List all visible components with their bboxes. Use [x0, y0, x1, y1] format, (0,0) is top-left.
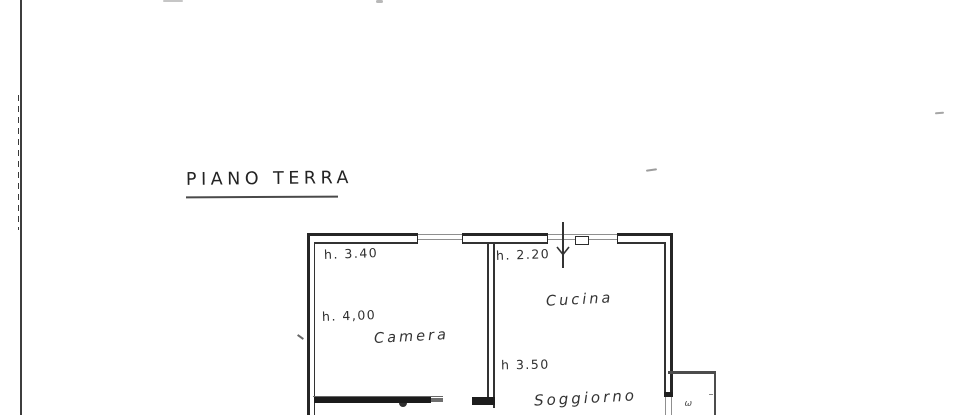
door-hinge-bump — [399, 403, 407, 408]
wall-bottom-solid — [314, 397, 431, 403]
wall-partition-left-line — [487, 243, 489, 405]
balcony-door-opening-line — [671, 397, 672, 415]
wall-bottom-end-dash — [431, 398, 443, 402]
down-arrow-icon — [556, 246, 570, 256]
wall-top-segment-right — [618, 233, 673, 236]
wall-top-inner-line — [315, 242, 418, 244]
wall-top-inner-line — [618, 242, 664, 244]
window-jamb — [547, 233, 549, 244]
balcony-door-opening-line — [665, 397, 666, 415]
balcony-top-line — [668, 371, 716, 373]
wall-partition-foot — [472, 397, 495, 405]
room-label-camera: Camera — [374, 327, 450, 347]
wall-left-outer — [307, 233, 310, 415]
wall-right-inner — [664, 242, 666, 392]
room-label-cucina: Cucina — [546, 290, 614, 310]
wall-left-inner — [314, 242, 316, 415]
height-label-camera-window: h. 3.40 — [324, 245, 379, 262]
wall-left-tick — [297, 334, 304, 340]
wall-partition-right-line — [493, 243, 495, 408]
balcony-tick — [709, 394, 713, 395]
room-label-soggiorno: Soggiorno — [534, 386, 638, 409]
balcony-glyph: ω — [685, 399, 693, 409]
flue-marker-line — [562, 222, 564, 268]
window-camera-outer-line — [418, 234, 463, 235]
window-jamb — [417, 233, 419, 244]
wall-top-inner-line — [463, 242, 548, 244]
wall-top-segment-left — [307, 233, 418, 236]
height-label-soggiorno: h 3.50 — [501, 357, 550, 373]
wall-top-segment-mid — [463, 233, 548, 236]
balcony-right-line — [714, 371, 716, 415]
wall-pier-box — [575, 236, 589, 245]
window-camera-glazing-line — [418, 239, 463, 240]
window-cucina-outer-line — [548, 234, 618, 235]
window-jamb — [462, 233, 464, 244]
window-jamb — [617, 233, 619, 244]
floor-plan: ω Camera Cucina Soggiorno h. 3.40 h. 2.2… — [0, 0, 960, 415]
height-label-camera-main: h. 4,00 — [322, 307, 377, 324]
height-label-cucina: h. 2.20 — [496, 246, 551, 263]
